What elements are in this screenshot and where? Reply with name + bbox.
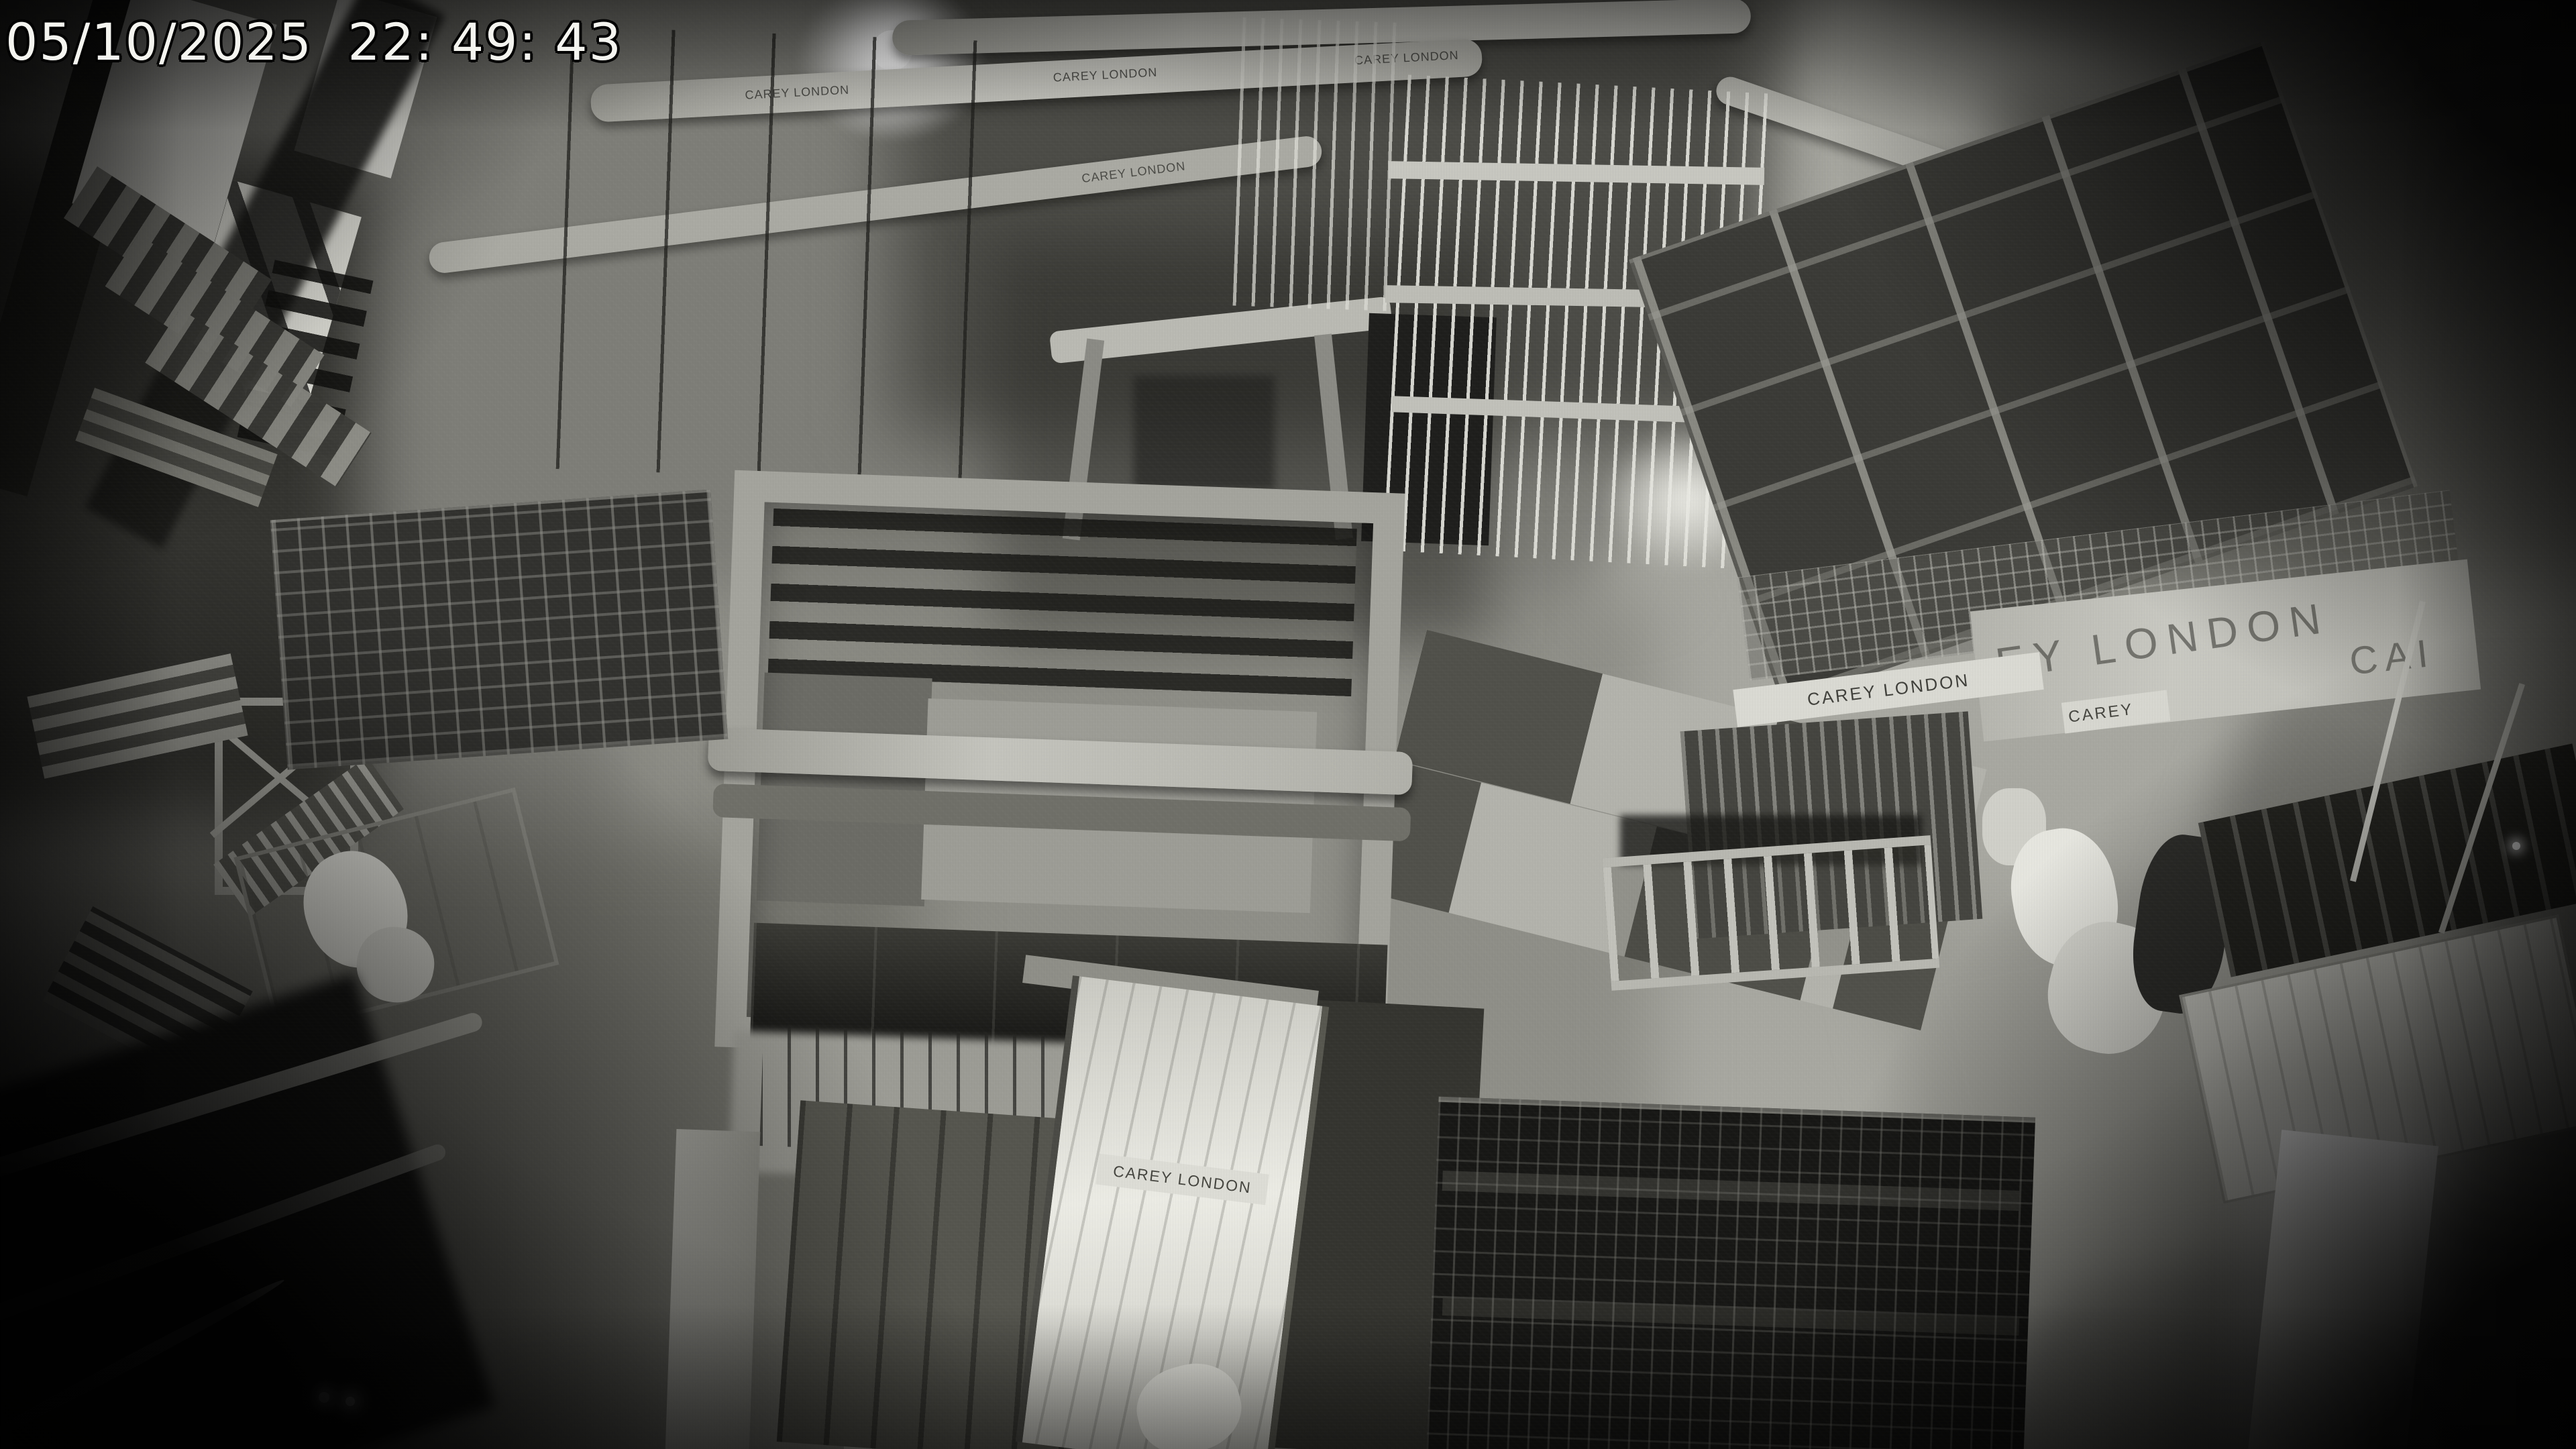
baluster-rack <box>1603 835 1940 991</box>
shadow-under-trestle <box>1134 376 1275 490</box>
beam-banner-label: CAREY LONDON <box>1081 160 1186 184</box>
cctv-photo-frame: CAREY LONDON CAREY LONDON CAREY LONDON C… <box>0 0 2576 1449</box>
banner-text-fragment: EY LONDON <box>1992 592 2332 688</box>
small-work-light <box>345 1397 355 1406</box>
scaffold-standards <box>556 26 987 483</box>
timestamp-overlay: 05/10/2025 22: 49: 43 <box>5 12 623 72</box>
small-light-point <box>2512 842 2520 850</box>
bright-lit-wall-strip <box>2247 1130 2438 1449</box>
small-work-light <box>319 1392 329 1403</box>
concrete-wall-post <box>665 1129 761 1449</box>
beam-banner-label: CAREY LONDON <box>1053 66 1157 84</box>
banner-text-fragment: CAI <box>2347 631 2436 684</box>
rebar-mat <box>270 490 728 770</box>
rebar-cage-small <box>1233 17 1411 311</box>
rebar-wall-grid <box>1426 1097 2035 1449</box>
